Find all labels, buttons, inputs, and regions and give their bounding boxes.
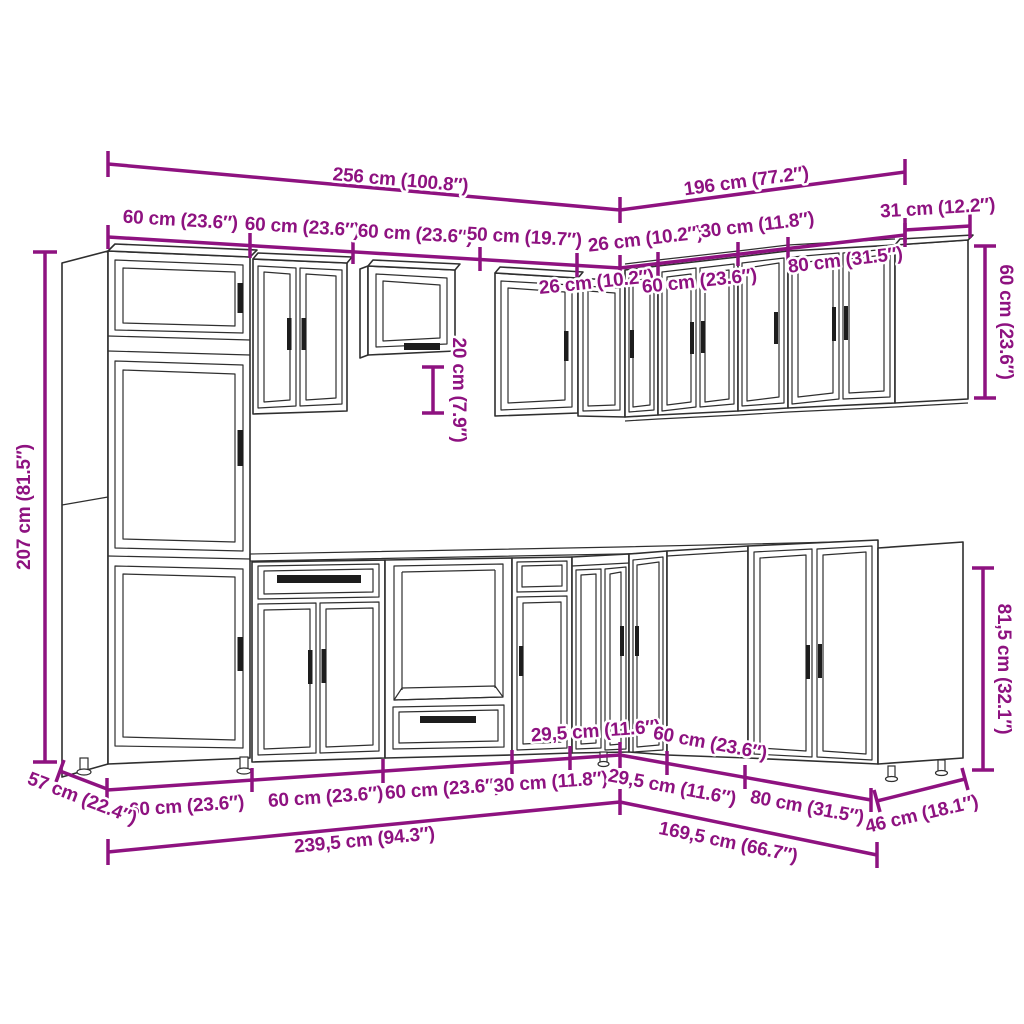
- dim-line-wall-height-right: [974, 246, 996, 398]
- drawer-handle: [420, 716, 476, 723]
- dim-top-seg-3: 60 cm (23.6″): [357, 221, 473, 249]
- door-handle: [287, 318, 292, 350]
- dim-line-height-left: [33, 252, 57, 762]
- wall-cabinet-60-double: [253, 253, 352, 414]
- door-handle: [238, 283, 244, 313]
- dim-top-seg-2: 60 cm (23.6″): [244, 214, 360, 242]
- wall-cabinet-corner-26: [578, 278, 625, 417]
- dim-mid-gap: 20 cm (7.9″): [448, 338, 469, 443]
- diagram-canvas: 256 cm (100.8″) 196 cm (77.2″) 31 cm (12…: [0, 0, 1024, 1024]
- door-handle: [302, 318, 307, 350]
- dim-base-height-right: 81,5 cm (32.1″): [993, 604, 1014, 735]
- door-handle: [238, 637, 244, 671]
- cabinet-foot: [240, 757, 248, 769]
- door-handle: [844, 306, 848, 340]
- cabinet-drawing: [62, 235, 973, 782]
- dim-top-seg-1: 60 cm (23.6″): [122, 207, 238, 235]
- door-handle: [404, 343, 440, 350]
- door-handle: [564, 331, 569, 361]
- tall-cabinet: [62, 244, 257, 777]
- door-handle: [620, 626, 624, 656]
- door-handle: [322, 649, 327, 683]
- cabinet-foot: [80, 758, 88, 770]
- dim-top-seg-50: 50 cm (19.7″): [466, 224, 582, 252]
- door-handle: [635, 626, 639, 656]
- door-handle: [701, 321, 705, 353]
- dim-bottom-seg-3: 60 cm (23.6″): [384, 775, 500, 804]
- dim-line-mid-gap: [422, 367, 444, 413]
- dim-wall-height-right: 60 cm (23.6″): [995, 264, 1016, 379]
- drawer-handle: [277, 575, 361, 583]
- dim-top-right-end: 31 cm (12.2″): [879, 195, 995, 223]
- wall-cabinet-flap: [360, 260, 460, 358]
- door-handle: [806, 645, 810, 679]
- door-handle: [308, 650, 313, 684]
- door-handle: [818, 644, 822, 678]
- cabinet-foot: [938, 760, 945, 771]
- dim-bottom-seg-30: 30 cm (11.8″): [493, 768, 608, 797]
- dim-height-left: 207 cm (81.5″): [14, 444, 35, 570]
- dim-bottom-seg-1: 60 cm (23.6″): [128, 792, 244, 821]
- door-handle: [774, 312, 778, 344]
- door-handle: [238, 430, 244, 466]
- cabinet-foot: [888, 766, 895, 777]
- door-handle: [690, 322, 694, 354]
- dim-bottom-seg-2: 60 cm (23.6″): [267, 783, 383, 812]
- dim-bottom-right-80: 80 cm (31.5″): [748, 787, 865, 829]
- dim-line-base-height-right: [972, 568, 994, 770]
- door-handle: [832, 307, 836, 341]
- cabinet-dimension-diagram: 256 cm (100.8″) 196 cm (77.2″) 31 cm (12…: [0, 0, 1024, 1024]
- dim-top-right-30: 30 cm (11.8″): [699, 208, 815, 242]
- door-handle: [630, 330, 634, 358]
- dim-top-right-26: 26 cm (10.2″): [587, 222, 704, 256]
- door-handle: [519, 646, 524, 676]
